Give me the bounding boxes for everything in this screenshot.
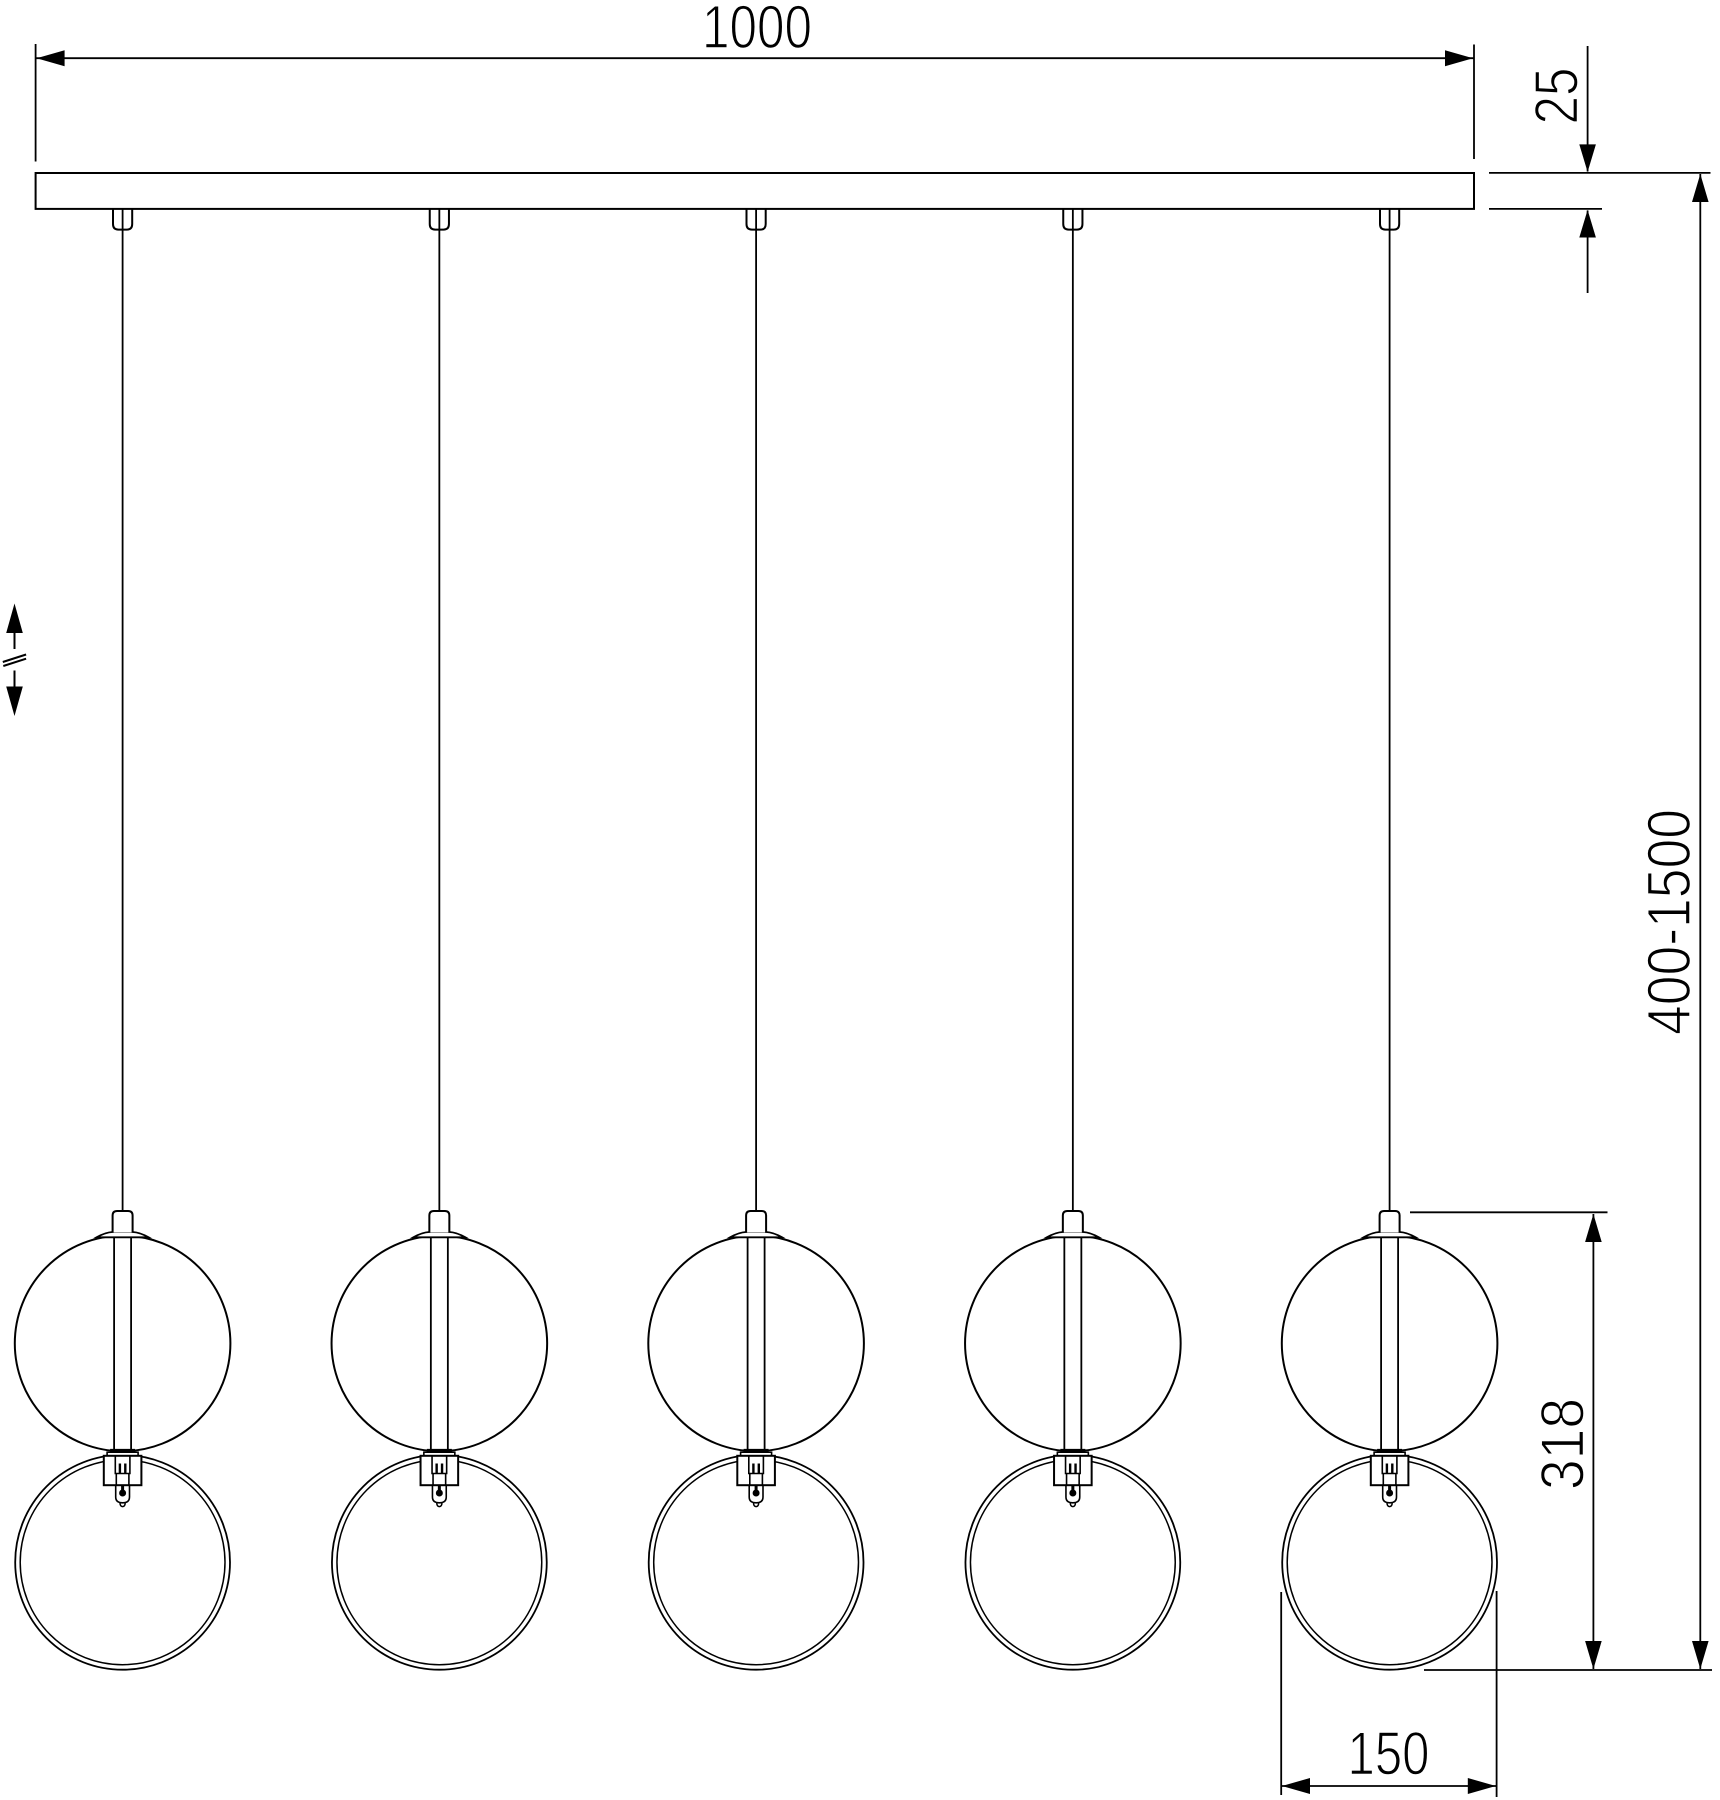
svg-text:400-1500: 400-1500: [1635, 809, 1703, 1035]
svg-text:318: 318: [1529, 1398, 1597, 1490]
svg-text:25: 25: [1523, 68, 1591, 125]
svg-text:1000: 1000: [702, 0, 812, 61]
svg-text:150: 150: [1348, 1720, 1430, 1788]
